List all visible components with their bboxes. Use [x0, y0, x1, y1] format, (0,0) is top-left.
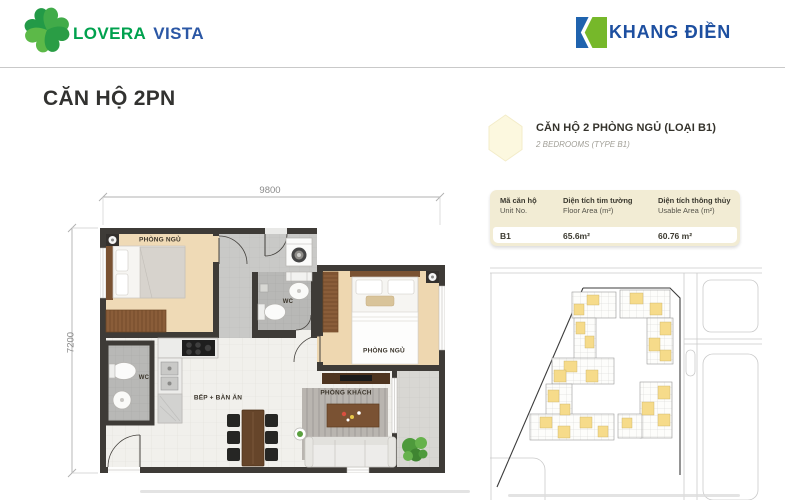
- bedroom2-ac-unit: [426, 271, 439, 283]
- tv-console: [322, 373, 390, 384]
- dimension-height: 7200: [66, 323, 77, 363]
- col-unit-no: Mã căn hộ Unit No.: [500, 196, 537, 216]
- wc2: [106, 343, 152, 423]
- table-row: B1 65.6m² 60.76 m²: [493, 227, 737, 243]
- side-table-plant: [294, 428, 306, 440]
- khang-dien-wordmark: KHANG ĐIỀN: [609, 22, 731, 43]
- lovera-vista-wordmark: LOVERAVISTA: [73, 24, 204, 44]
- hexagon-icon: [487, 114, 524, 162]
- floor-area-value: 65.6m²: [563, 231, 590, 241]
- area-table: Mã căn hộ Unit No. Diện tích tim tường F…: [490, 190, 740, 246]
- living-label: PHÒNG KHÁCH: [320, 390, 371, 397]
- bedroom1-bed: [106, 244, 185, 300]
- bedroom1-wardrobe: [106, 310, 166, 332]
- bedroom2-label: PHÒNG NGỦ: [363, 348, 405, 355]
- header: LOVERAVISTA KHANG ĐIỀN: [0, 0, 785, 67]
- floor-plan: 9800 7200: [60, 185, 460, 500]
- clover-icon: [24, 7, 70, 53]
- site-plan: [490, 262, 762, 500]
- wc1-label: WC: [283, 299, 293, 305]
- wc2-label: WC: [139, 375, 149, 381]
- bedroom2-wardrobe: [323, 272, 338, 332]
- floorplan-shadow: [140, 490, 470, 493]
- unit-type-title: CĂN HỘ 2 PHÒNG NGỦ (LOẠI B1): [536, 122, 716, 134]
- dimension-width: 9800: [210, 185, 330, 196]
- coffee-table: [327, 404, 379, 427]
- sofa: [305, 437, 396, 467]
- page-title: CĂN HỘ 2PN: [43, 87, 176, 111]
- col-usable-area: Diện tích thông thủy Usable Area (m²): [658, 196, 731, 216]
- vista-word: VISTA: [153, 24, 204, 43]
- unit-no-value: B1: [500, 231, 511, 241]
- siteplan-shadow: [508, 494, 740, 497]
- unit-type-subtitle: 2 BEDROOMS (TYPE B1): [536, 140, 630, 149]
- bedroom1-label: PHÒNG NGỦ: [139, 237, 181, 244]
- lovera-word: LOVERA: [73, 24, 146, 43]
- bedroom1-ac-unit: [106, 234, 119, 246]
- header-divider: [0, 67, 785, 68]
- usable-area-value: 60.76 m²: [658, 231, 692, 241]
- dining-table: [227, 410, 278, 466]
- brochure-page: LOVERAVISTA KHANG ĐIỀN CĂN HỘ 2PN: [0, 0, 785, 500]
- washing-machine: [286, 238, 312, 266]
- khang-dien-icon: [576, 17, 607, 48]
- col-floor-area: Diện tích tim tường Floor Area (m²): [563, 196, 633, 216]
- kitchen-label: BẾP + BÀN ĂN: [194, 395, 242, 402]
